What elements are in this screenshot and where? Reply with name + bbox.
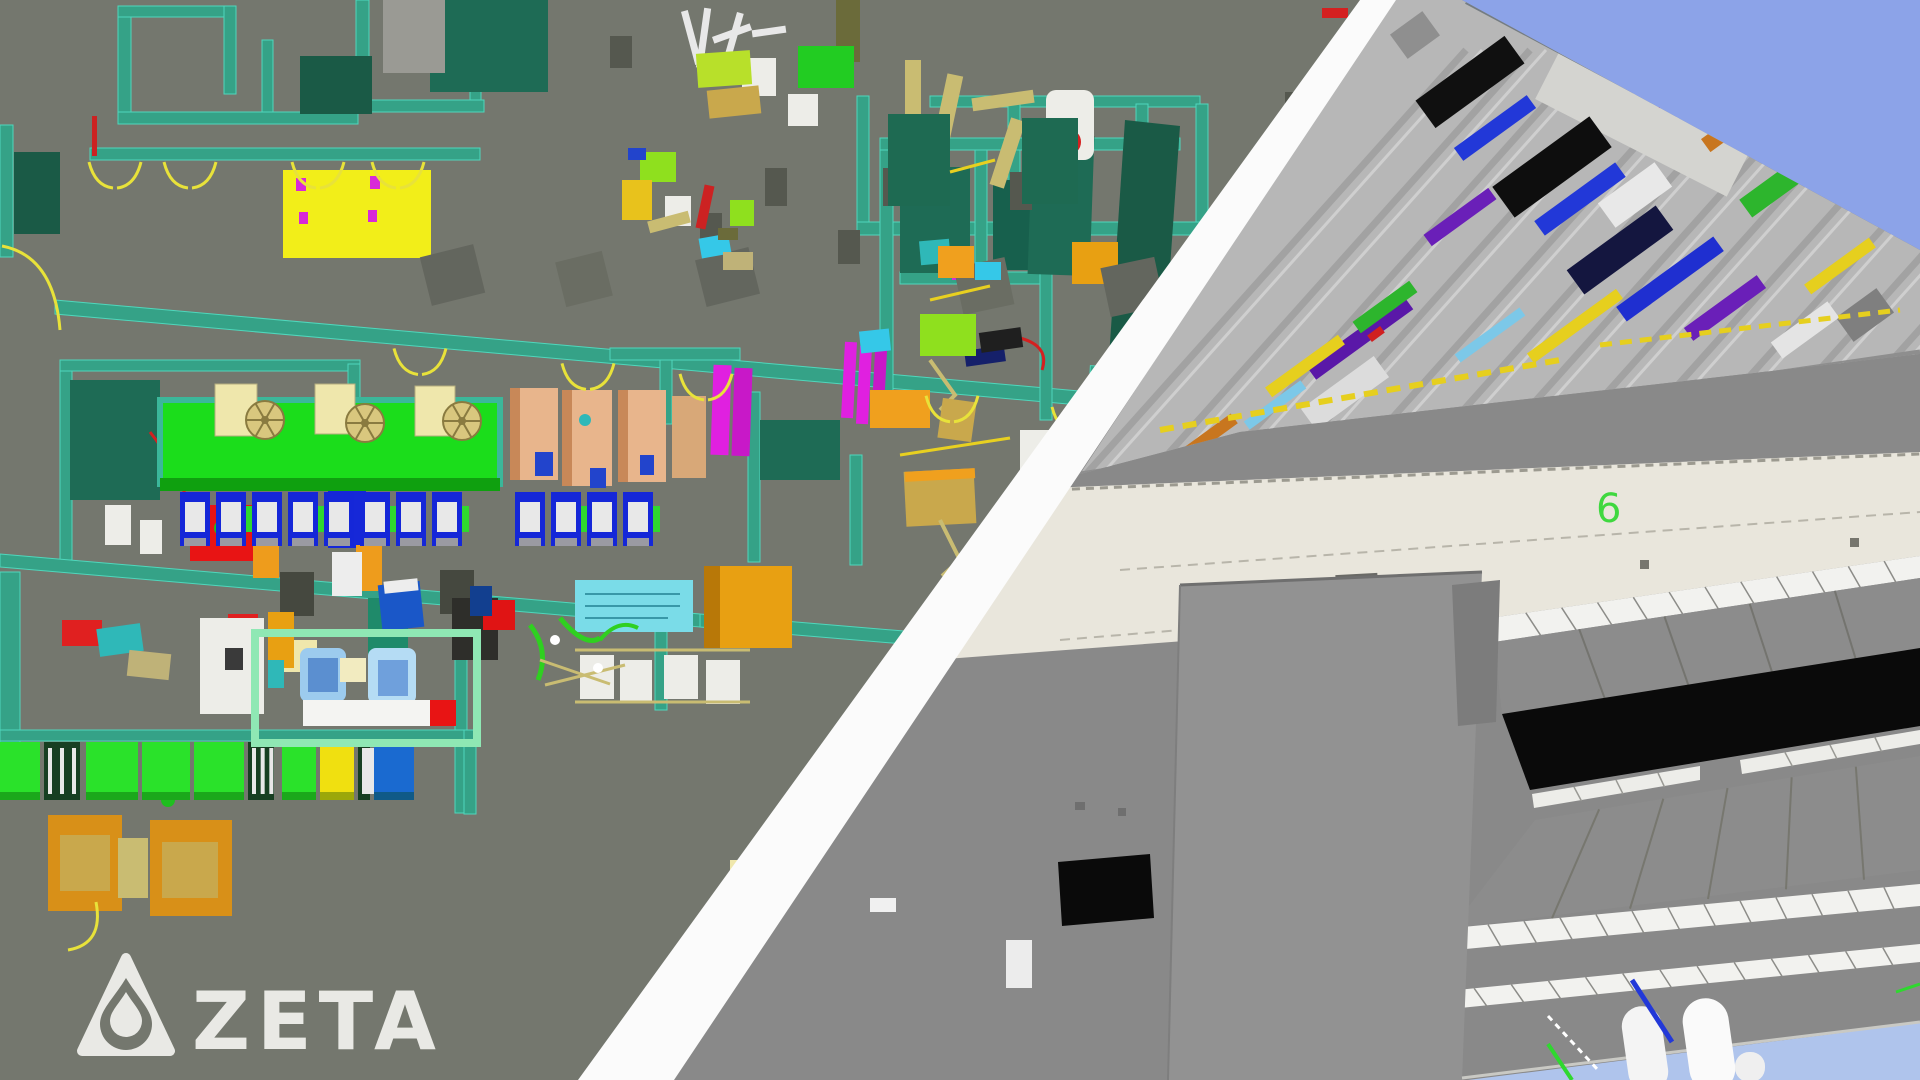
wall-segment <box>90 148 480 160</box>
foreground-detail <box>870 898 896 912</box>
equipment <box>127 650 171 680</box>
green-machine <box>320 742 354 800</box>
equipment <box>105 505 131 545</box>
wall-segment <box>14 152 60 234</box>
wall-segment <box>356 100 484 112</box>
stripe <box>60 748 64 794</box>
green-machine-row <box>0 742 414 800</box>
room-furniture <box>430 700 456 726</box>
green-machine <box>0 742 40 800</box>
reel-hub <box>361 419 369 427</box>
green-machine <box>374 742 414 800</box>
equipment <box>579 414 591 426</box>
equipment <box>1322 8 1348 18</box>
equipment <box>162 842 218 898</box>
room-furniture <box>303 700 431 726</box>
wall-segment <box>850 455 862 565</box>
blue-machine-base <box>328 538 350 546</box>
equipment <box>696 50 752 88</box>
equipment <box>140 520 162 554</box>
room-furniture <box>378 660 408 696</box>
green-separator <box>581 506 588 532</box>
reel-hub <box>261 416 269 424</box>
blue-machine-panel <box>185 502 205 532</box>
equipment <box>920 314 976 356</box>
stripe <box>370 748 374 794</box>
equipment <box>92 116 97 156</box>
wall-segment <box>760 420 840 480</box>
green-separator <box>390 506 397 532</box>
wall-segment <box>118 6 131 118</box>
equipment <box>870 390 930 428</box>
equipment <box>704 566 720 648</box>
wall-segment <box>118 6 230 17</box>
green-machine <box>86 742 138 800</box>
wall-segment <box>857 96 869 226</box>
stripe <box>366 748 370 794</box>
equipment <box>798 46 854 88</box>
blue-machine-row <box>180 492 660 546</box>
wall-segment <box>224 6 236 94</box>
stripe <box>269 748 273 794</box>
zeta-logo: ZETA <box>82 958 443 1068</box>
machine-shadow <box>374 792 414 800</box>
stripe <box>261 748 265 794</box>
equipment <box>535 452 553 476</box>
blue-machine-panel <box>520 502 540 532</box>
wall-segment <box>262 40 273 112</box>
blue-machine-base <box>184 538 206 546</box>
stripe <box>362 748 366 794</box>
wall-segment <box>975 150 987 275</box>
equipment <box>765 168 787 206</box>
roof-number-label: 6 <box>1596 486 1621 532</box>
blue-machine-base <box>519 538 541 546</box>
wall-segment <box>1040 272 1052 420</box>
blue-machine-base <box>627 538 649 546</box>
blue-machine-base <box>436 538 458 546</box>
wall-segment <box>300 56 372 114</box>
machine-shadow <box>0 792 40 800</box>
machine-shadow <box>194 792 244 800</box>
equipment <box>640 455 654 475</box>
equipment <box>62 620 102 646</box>
equipment <box>268 612 294 668</box>
room-furniture <box>268 660 284 688</box>
wall-segment <box>430 0 548 92</box>
equipment <box>664 655 698 699</box>
foreground-detail <box>1075 802 1085 810</box>
equipment <box>710 365 731 456</box>
stripe <box>72 748 76 794</box>
equipment <box>723 252 753 270</box>
green-separator <box>653 506 660 532</box>
equipment <box>383 0 445 73</box>
roof-detail <box>1640 560 1649 569</box>
green-separator <box>462 506 469 532</box>
foreground-detail <box>1735 1052 1765 1080</box>
wall-segment <box>70 380 160 500</box>
blue-machine-base <box>220 538 242 546</box>
equipment <box>60 835 110 891</box>
equipment <box>672 396 706 478</box>
wall-segment <box>1196 104 1208 230</box>
blue-machine-base <box>555 538 577 546</box>
equipment <box>938 246 974 278</box>
blue-machine-panel <box>293 502 313 532</box>
equipment <box>590 468 606 488</box>
equipment <box>1022 118 1078 204</box>
equipment <box>562 390 572 486</box>
equipment <box>332 552 362 596</box>
machine-shadow <box>142 792 190 800</box>
blue-machine-base <box>292 538 314 546</box>
green-machine <box>194 742 244 800</box>
wall-segment <box>60 360 360 371</box>
foreground-detail <box>1452 580 1500 726</box>
equipment <box>628 148 646 160</box>
equipment <box>225 648 243 670</box>
blue-machine-panel <box>592 502 612 532</box>
green-separator <box>318 506 325 532</box>
equipment <box>975 262 1001 280</box>
blue-machine-panel <box>221 502 241 532</box>
equipment <box>550 635 560 645</box>
reel-hub <box>458 417 466 425</box>
equipment <box>368 210 377 222</box>
equipment <box>859 328 891 353</box>
roof-detail <box>1850 538 1859 547</box>
machine-shadow <box>86 792 138 800</box>
zeta-logo-text: ZETA <box>192 975 443 1068</box>
machine-shadow <box>320 792 354 800</box>
green-separator <box>246 506 253 532</box>
equipment <box>838 230 860 264</box>
equipment <box>299 212 308 224</box>
equipment <box>707 85 762 118</box>
blue-machine-panel <box>556 502 576 532</box>
wall-segment <box>0 125 13 257</box>
blue-machine-base <box>591 538 613 546</box>
machine-shadow <box>282 792 316 800</box>
blue-machine-panel <box>257 502 277 532</box>
reel-platform <box>160 384 500 491</box>
equipment <box>718 228 738 240</box>
equipment <box>470 586 492 616</box>
blue-machine-panel <box>437 502 457 532</box>
room-furniture <box>308 658 338 692</box>
blue-machine-panel <box>329 502 349 532</box>
equipment <box>593 663 603 673</box>
blue-machine-base <box>400 538 422 546</box>
foreground-detail <box>1058 854 1154 926</box>
blue-machine-base <box>256 538 278 546</box>
stripe <box>252 748 256 794</box>
equipment <box>118 838 148 898</box>
equipment <box>788 94 818 126</box>
composite-cad-render: 6 ZETA <box>0 0 1920 1080</box>
green-machine <box>142 742 190 800</box>
tower-block <box>1168 572 1482 1080</box>
blue-machine-panel <box>365 502 385 532</box>
equipment <box>622 180 652 220</box>
equipment <box>610 36 632 68</box>
equipment <box>731 368 752 457</box>
foreground-detail <box>1006 940 1032 988</box>
stripe <box>48 748 52 794</box>
foreground-detail <box>1118 808 1126 816</box>
equipment <box>510 388 520 480</box>
equipment <box>730 200 754 226</box>
equipment <box>280 572 314 616</box>
wall-segment <box>610 348 740 360</box>
green-machine <box>282 742 316 800</box>
blue-machine-panel <box>401 502 421 532</box>
equipment <box>618 390 628 482</box>
blue-machine-base <box>364 538 386 546</box>
blue-machine-panel <box>628 502 648 532</box>
room-furniture <box>340 658 366 682</box>
platform-front <box>160 478 500 491</box>
equipment <box>888 114 950 206</box>
equipment <box>706 660 740 704</box>
